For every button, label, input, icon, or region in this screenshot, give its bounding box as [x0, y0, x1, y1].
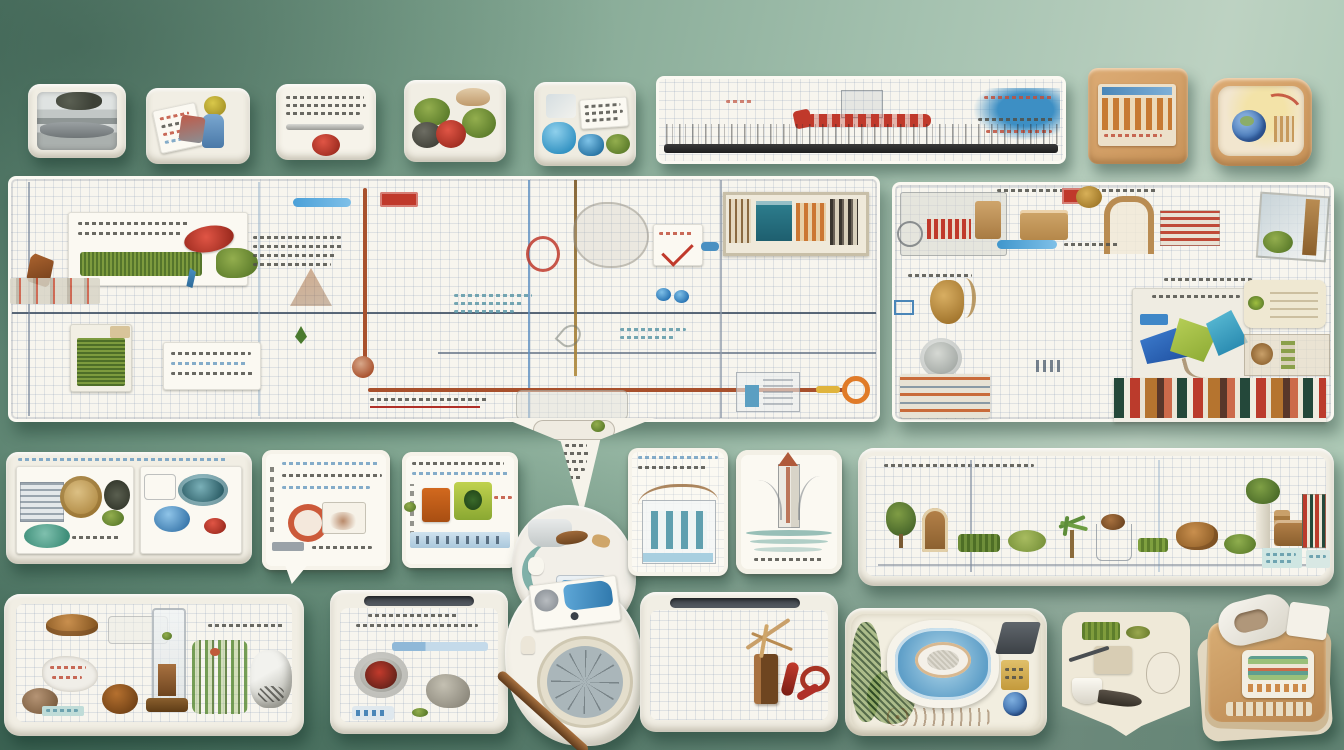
rust-pipe-knob	[352, 356, 374, 378]
brown-splash	[328, 512, 358, 530]
cream-panel	[1244, 280, 1326, 328]
red-stripe	[786, 467, 790, 523]
ruler-board	[656, 76, 1066, 164]
tray-color-cards	[146, 88, 250, 164]
dark-strip	[664, 144, 1058, 153]
glass-tower	[146, 608, 188, 712]
gold-disc	[60, 476, 102, 518]
machine-collage	[900, 192, 1007, 256]
building-card-tray	[628, 448, 728, 576]
orange-sticker	[422, 488, 450, 522]
blue-header-stripe	[1102, 87, 1172, 95]
treetops	[56, 92, 102, 110]
columns	[1102, 98, 1172, 130]
tree-strip	[729, 199, 751, 243]
teal-bowl	[178, 474, 228, 506]
shelf-objects	[1251, 343, 1273, 365]
palm-plant	[1058, 516, 1088, 558]
moss-brick-small	[1126, 626, 1150, 639]
pipe-orange-ring	[842, 376, 870, 404]
tail-plant	[591, 420, 605, 432]
moss-bit	[102, 510, 124, 526]
teal-cards	[1262, 548, 1302, 568]
woven-wheel	[547, 646, 623, 718]
terrain-inner	[851, 614, 1041, 730]
grass-box	[70, 324, 132, 392]
white-chip	[528, 557, 544, 575]
grass-vertical	[77, 338, 125, 386]
blue-tag-outline	[894, 300, 914, 315]
red-pom	[436, 120, 466, 148]
bread-boat	[46, 614, 98, 636]
tan-corner	[110, 326, 130, 338]
teal-wave	[750, 539, 828, 544]
sketch-curls	[1146, 652, 1180, 694]
teal-oval	[24, 524, 70, 548]
striped-labels	[1160, 210, 1220, 246]
mini-bookshelf	[1114, 378, 1326, 422]
speech-card-tray	[262, 450, 390, 570]
field-center	[927, 650, 959, 670]
tan-chip	[591, 533, 611, 549]
moss-in-pane	[1262, 230, 1293, 254]
tray-note-red-ball	[276, 84, 376, 160]
book-stand	[1302, 494, 1326, 548]
grid-tray-specimens	[4, 594, 304, 736]
chair-basket	[1096, 524, 1132, 561]
table-line	[878, 564, 1318, 566]
base-step	[643, 553, 713, 562]
moss-fan	[216, 248, 258, 278]
moss-clump	[606, 134, 630, 154]
handle-notch	[670, 598, 800, 608]
glass-shard	[546, 94, 576, 118]
tan-grill	[1274, 116, 1294, 142]
blue-pill-marker	[997, 240, 1057, 249]
blue-figurine	[202, 114, 224, 148]
red-pom	[204, 518, 226, 534]
tower-tip	[778, 452, 798, 466]
teal-wave	[754, 547, 822, 552]
dark-wedge	[995, 622, 1041, 654]
red-grille	[927, 219, 971, 239]
tray-moss-cluster	[404, 80, 506, 162]
label-card	[579, 96, 629, 129]
mini-barchart-sketch	[1036, 360, 1064, 372]
dark-fish	[1097, 689, 1143, 709]
pane-frame	[1302, 199, 1320, 256]
rust-pipe-vertical	[363, 188, 367, 360]
diorama-left	[16, 466, 134, 554]
teal-panel	[756, 201, 792, 241]
diorama-right	[140, 466, 242, 554]
blue-crystal	[578, 134, 604, 156]
moss-crumb	[412, 708, 428, 717]
blue-tag	[1140, 314, 1168, 325]
moss-clump	[462, 108, 496, 138]
blue-paint-card	[529, 575, 622, 631]
green-tuft	[1248, 296, 1264, 310]
rule-navy	[12, 312, 876, 314]
nut	[102, 684, 138, 714]
key-rows	[1226, 702, 1312, 716]
red-stamp	[380, 192, 418, 207]
tree-sketch	[573, 202, 649, 268]
blue-pill-small	[701, 242, 719, 251]
yellow-packet	[1001, 660, 1029, 690]
stacked-binders	[1196, 598, 1338, 746]
tan-shell	[456, 88, 490, 106]
machine-sketch	[144, 474, 176, 500]
text-block	[253, 236, 345, 274]
blue-paint	[563, 580, 614, 612]
sticker-center	[464, 490, 482, 510]
silver-pen	[286, 124, 364, 130]
grey-leaf-sketch	[555, 320, 586, 351]
long-tray-paper	[866, 456, 1326, 576]
blue-sphere	[1003, 692, 1027, 716]
arch-cabinet	[922, 508, 948, 552]
bubble-tail	[284, 562, 310, 584]
glass-moss-pane	[1256, 192, 1330, 263]
building-print	[1098, 84, 1176, 146]
crystal-sack	[250, 650, 292, 708]
globe-land	[1240, 116, 1254, 126]
hedge-box	[958, 534, 1000, 552]
grey-bar	[272, 542, 304, 551]
debris	[887, 708, 991, 726]
print-hull	[40, 122, 114, 138]
teal-shard	[1206, 310, 1248, 356]
sticker-card-tray	[402, 452, 518, 568]
teal-text-small	[620, 328, 690, 342]
blue-egg	[154, 506, 190, 532]
vline-grey2	[720, 180, 722, 418]
tray-stacked-prints	[28, 84, 126, 158]
geo-collage-card	[1132, 288, 1250, 382]
teal-text-block	[454, 294, 536, 316]
blue-globe	[1232, 110, 1266, 142]
sail-curve	[798, 476, 826, 520]
grid-tray-wood	[640, 592, 838, 732]
graph-board-right	[892, 182, 1334, 422]
shelf-objects	[1281, 341, 1295, 369]
hedge-box	[1138, 538, 1168, 552]
grass-strip	[80, 252, 202, 276]
graph-board-left	[8, 176, 880, 422]
photo-collage	[0, 0, 1344, 750]
long-miniatures-tray	[858, 448, 1334, 586]
dark-slats	[830, 199, 858, 245]
topiary	[886, 502, 916, 548]
shelf-grid	[1244, 334, 1330, 376]
terrain-tray	[845, 608, 1047, 736]
bread-loaf	[1176, 522, 1218, 550]
blue-dots	[674, 290, 689, 303]
barcode-ticks	[666, 124, 1058, 144]
red-card-bits	[178, 114, 205, 143]
columns	[651, 511, 707, 549]
teal-tag	[42, 706, 84, 716]
vline-light	[1158, 460, 1160, 572]
grey-coin	[920, 338, 962, 378]
red-chili-curl	[780, 661, 800, 697]
blue-pill-marker	[293, 198, 351, 207]
moss-brick	[1082, 622, 1120, 640]
grass-card	[68, 212, 248, 286]
blue-dots	[656, 288, 671, 301]
moss-dot	[404, 502, 416, 512]
tan-tray-building	[1088, 68, 1188, 164]
globe-print	[1218, 86, 1304, 156]
candy-wraps	[42, 656, 98, 692]
vline-brown	[574, 180, 577, 376]
blue-bar	[392, 642, 488, 651]
text-card	[163, 342, 261, 390]
white-sheet-corner	[1286, 601, 1330, 640]
tiny-figure	[521, 636, 535, 654]
leaf-green	[295, 326, 307, 344]
capsule-strip	[352, 706, 394, 720]
panel-lines	[1270, 290, 1318, 318]
wood-tray-paper	[650, 610, 828, 720]
cup-tray-paper	[340, 608, 498, 722]
metal-cup	[354, 652, 408, 698]
dark-bush	[104, 480, 130, 510]
specimens-paper	[16, 604, 292, 722]
ferns	[192, 640, 248, 714]
cardboard-box	[1020, 210, 1068, 240]
orange-figures	[796, 203, 826, 241]
speech-card	[653, 224, 703, 266]
grey-stone	[426, 674, 470, 708]
stadium-bowl	[887, 620, 999, 708]
striped-pad	[1242, 650, 1314, 698]
tick-column	[270, 462, 274, 532]
rule-grey	[438, 352, 876, 354]
hedge-dome	[1008, 530, 1046, 552]
blue-crystal	[542, 122, 576, 154]
pipe-yellow-dash	[816, 386, 840, 393]
vline	[970, 460, 972, 572]
band-figures	[416, 536, 502, 544]
squirrel-tail	[954, 278, 976, 318]
blue-door	[745, 385, 759, 407]
red-check	[661, 234, 694, 267]
wheel-outline	[897, 221, 923, 247]
tan-tray-globe	[1210, 78, 1312, 166]
teal-cards	[1306, 550, 1330, 568]
red-circle-sketch	[526, 236, 560, 272]
teal-building	[642, 500, 716, 564]
framed-picture	[723, 192, 869, 256]
wood-block	[754, 654, 778, 704]
red-yarn-ball	[312, 134, 340, 156]
building-print	[20, 482, 64, 522]
red-underline	[370, 406, 480, 408]
blue-band	[410, 532, 510, 548]
building-strip	[10, 278, 100, 304]
wide-diorama-tray	[6, 452, 252, 564]
gold-tuft	[1076, 186, 1102, 208]
grid-tray-cup	[330, 590, 508, 734]
paper-blob-wheel	[505, 582, 643, 746]
roof-lines	[763, 379, 793, 405]
handle-notch	[364, 596, 474, 606]
machine-sketch	[516, 390, 628, 420]
tray-blue-crystals	[534, 82, 636, 166]
striped-stack	[900, 374, 990, 418]
building-sketch	[736, 372, 800, 412]
teal-wave	[746, 530, 832, 536]
tower-card-tray	[736, 450, 842, 574]
yellow-tuft	[204, 96, 226, 116]
cup-fish-tray	[1062, 612, 1190, 736]
dark-dot	[570, 612, 579, 621]
green-sticker	[454, 482, 492, 520]
grey-blob	[533, 588, 560, 613]
tan-part	[975, 201, 1001, 239]
